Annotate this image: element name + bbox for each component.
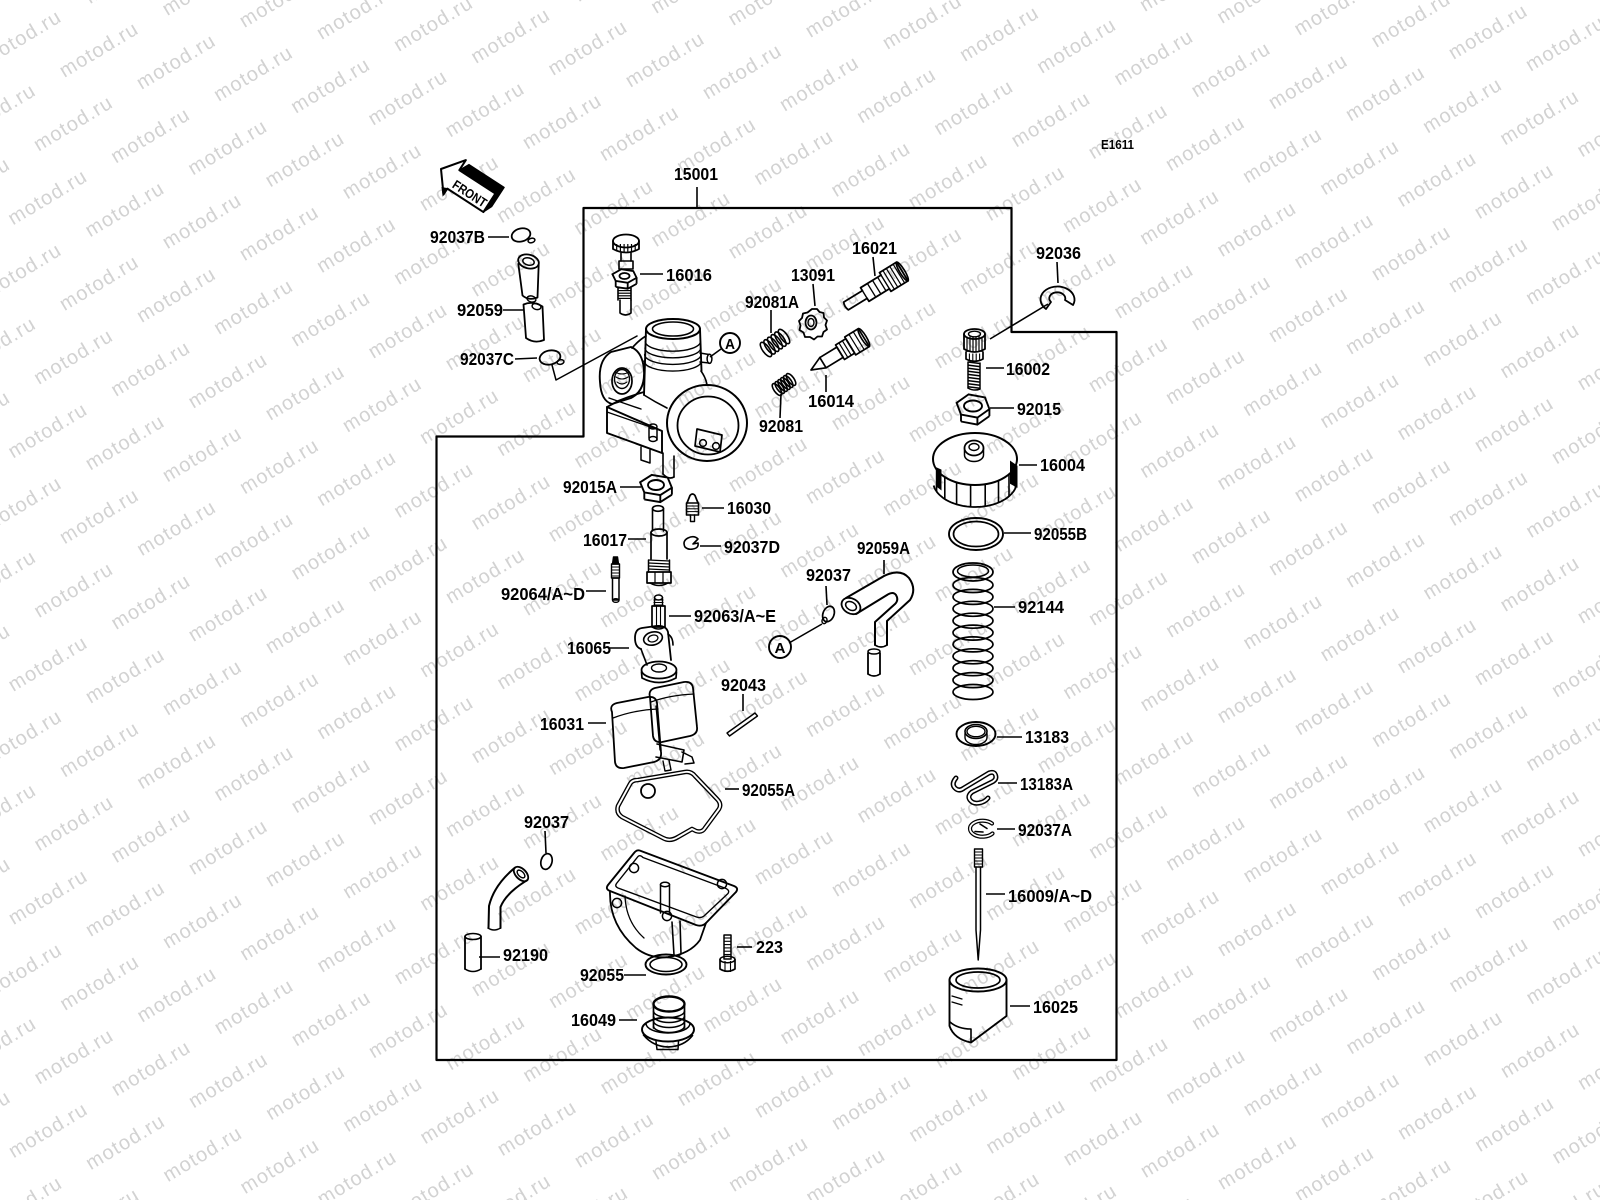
svg-text:92037: 92037 — [806, 565, 851, 585]
svg-text:223: 223 — [756, 937, 783, 957]
svg-text:92037C: 92037C — [460, 349, 514, 369]
svg-text:16002: 16002 — [1006, 359, 1050, 379]
svg-text:16021: 16021 — [852, 238, 897, 258]
svg-text:13183A: 13183A — [1020, 774, 1073, 794]
svg-text:16009/A~D: 16009/A~D — [1008, 886, 1092, 906]
svg-text:13091: 13091 — [791, 265, 835, 285]
svg-text:92059: 92059 — [457, 300, 503, 320]
svg-text:92081: 92081 — [759, 416, 803, 436]
svg-text:92037B: 92037B — [430, 227, 485, 247]
svg-text:16004: 16004 — [1040, 455, 1085, 475]
svg-text:16017: 16017 — [583, 530, 627, 550]
svg-text:16031: 16031 — [540, 714, 584, 734]
svg-text:92055A: 92055A — [742, 780, 795, 800]
svg-text:92015A: 92015A — [563, 477, 617, 497]
svg-text:16016: 16016 — [666, 265, 712, 285]
svg-text:92064/A~D: 92064/A~D — [501, 584, 585, 604]
svg-text:92081A: 92081A — [745, 292, 799, 312]
svg-text:16030: 16030 — [727, 498, 771, 518]
svg-text:92037A: 92037A — [1018, 820, 1072, 840]
svg-text:92015: 92015 — [1017, 399, 1061, 419]
svg-text:92043: 92043 — [721, 675, 766, 695]
svg-text:16014: 16014 — [808, 391, 854, 411]
svg-text:92036: 92036 — [1036, 243, 1081, 263]
svg-text:92144: 92144 — [1018, 597, 1064, 617]
svg-text:92190: 92190 — [503, 945, 548, 965]
svg-text:92037D: 92037D — [724, 537, 780, 557]
svg-text:92059A: 92059A — [857, 538, 910, 558]
svg-text:A: A — [725, 337, 735, 353]
svg-text:13183: 13183 — [1025, 727, 1069, 747]
svg-text:E1611: E1611 — [1101, 137, 1134, 152]
svg-text:15001: 15001 — [674, 164, 718, 184]
svg-text:A: A — [775, 640, 786, 657]
svg-text:16049: 16049 — [571, 1010, 616, 1030]
svg-text:16065: 16065 — [567, 638, 611, 658]
svg-text:92055: 92055 — [580, 965, 624, 985]
svg-text:92063/A~E: 92063/A~E — [694, 606, 776, 626]
svg-text:16025: 16025 — [1033, 997, 1078, 1017]
svg-text:92037: 92037 — [524, 812, 569, 832]
svg-text:92055B: 92055B — [1034, 524, 1087, 544]
